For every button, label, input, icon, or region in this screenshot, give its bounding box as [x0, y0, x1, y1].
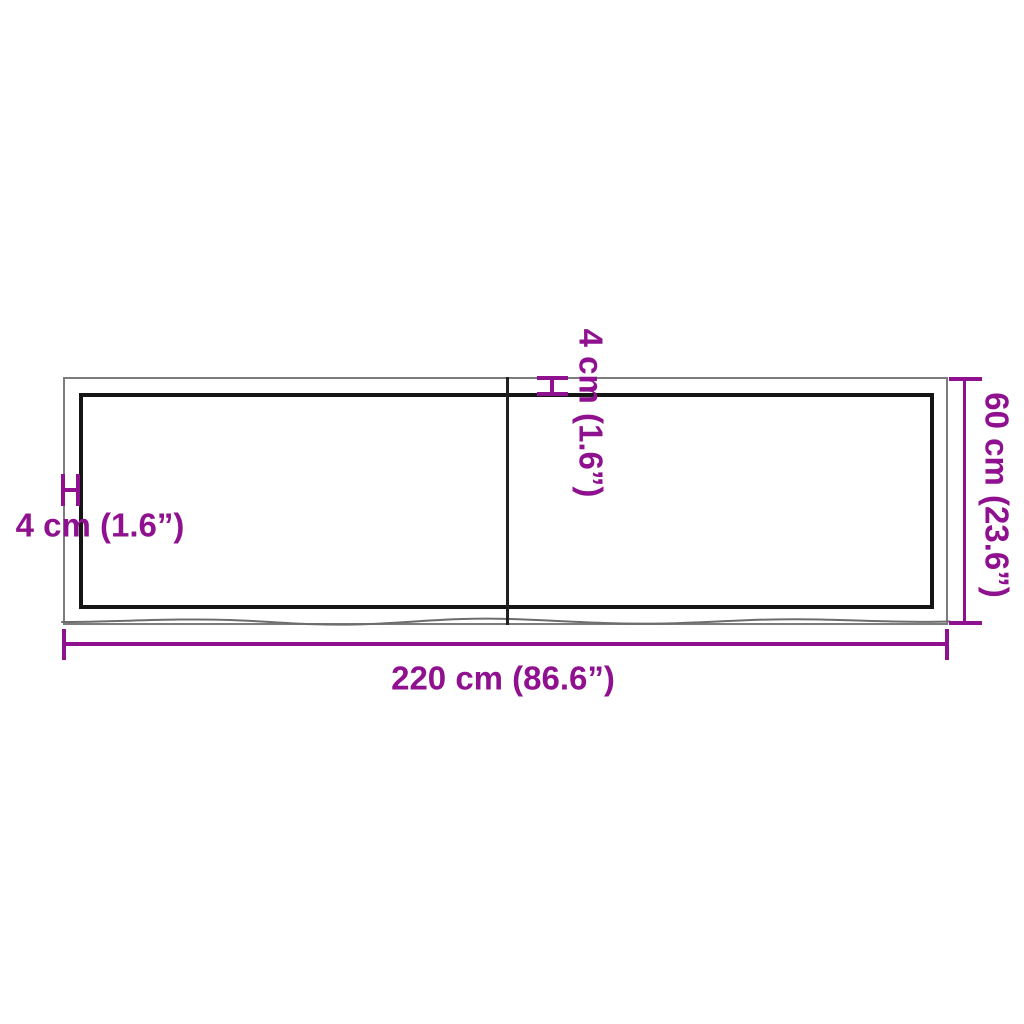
thickness-left-marker-crossbar	[61, 488, 80, 492]
width-dimension-line	[63, 642, 949, 646]
height-dimension-cap-bottom	[949, 621, 982, 625]
thickness-top-label: 4 cm (1.6”)	[575, 329, 608, 498]
width-dimension-cap-right	[945, 629, 949, 660]
width-label: 220 cm (86.6”)	[391, 662, 615, 695]
thickness-top-marker-crossbar	[550, 376, 554, 396]
height-dimension-line	[963, 379, 966, 624]
height-dimension-cap-top	[949, 377, 982, 381]
width-dimension-cap-left	[62, 629, 66, 660]
height-label: 60 cm (23.6”)	[981, 392, 1014, 597]
product-dimension-diagram: 4 cm (1.6”) 4 cm (1.6”) 60 cm (23.6”) 22…	[0, 0, 1024, 1024]
board-center-seam-line	[506, 377, 509, 625]
thickness-left-label: 4 cm (1.6”)	[16, 509, 185, 542]
